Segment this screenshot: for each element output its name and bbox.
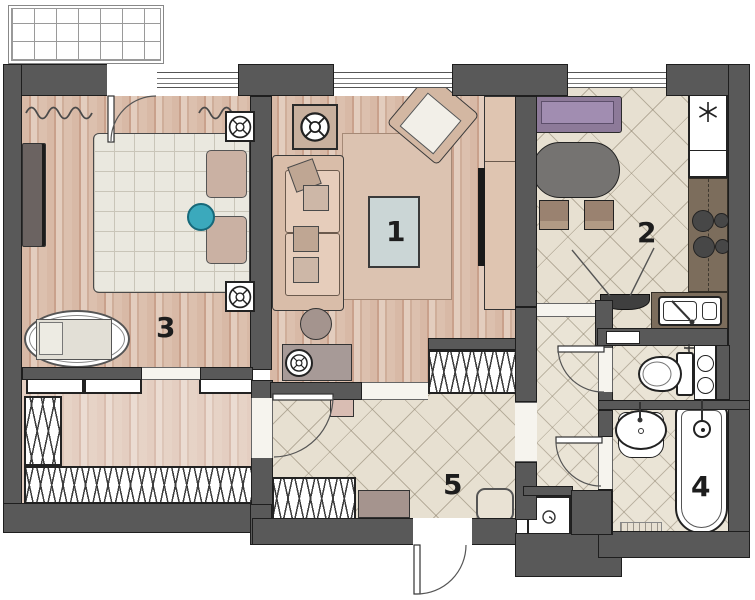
living-hall-opening xyxy=(362,382,428,400)
wall-living-bottom xyxy=(270,382,362,400)
crib-pillow xyxy=(39,322,63,355)
vent-duct xyxy=(606,331,640,344)
wall-top-pier xyxy=(238,64,334,96)
room-label-bedroom: 3 xyxy=(156,311,175,344)
sofa-pillow xyxy=(293,226,319,252)
wall-washer-side xyxy=(571,490,612,535)
bathroom-door-gap xyxy=(598,437,613,489)
tub-drain xyxy=(693,420,711,438)
wall-bottom-left xyxy=(3,503,270,533)
tv-unit xyxy=(484,96,516,310)
hall-wardrobe xyxy=(272,477,356,520)
kitchen-corridor-opening xyxy=(537,303,595,317)
wall-hall-corridor xyxy=(515,307,537,402)
refrigerator xyxy=(688,90,728,178)
wall-closet-top xyxy=(428,338,517,350)
pouf xyxy=(476,488,514,522)
stool-edge xyxy=(540,221,568,229)
kitchen-sink xyxy=(658,296,722,326)
kitchen-bench xyxy=(533,96,622,133)
tv-unit-shelf-line xyxy=(485,161,515,162)
living-spot xyxy=(292,104,338,150)
bed-pillow xyxy=(206,150,247,198)
room-label-hallway: 5 xyxy=(443,468,462,501)
wardrobe-left xyxy=(24,396,62,466)
wall-wc-bath xyxy=(598,400,750,410)
dressing-door-gap xyxy=(251,398,273,458)
teal-ottoman xyxy=(187,203,215,231)
room-label-living: 1 xyxy=(386,215,405,248)
wc-door-gap xyxy=(598,348,613,392)
sink-basin xyxy=(663,301,697,321)
hall-corridor-opening xyxy=(515,402,537,462)
entrance-door-swing xyxy=(417,545,466,594)
counter-dash-line xyxy=(708,179,709,291)
kitchen-window xyxy=(568,72,666,88)
kitchen-stool xyxy=(584,200,614,230)
side-table xyxy=(300,308,332,340)
bedroom-dressing-opening xyxy=(142,367,200,380)
stool-edge xyxy=(585,221,613,229)
balcony-tile-grid xyxy=(11,8,161,61)
spiral-icon xyxy=(539,507,559,527)
sink-basin xyxy=(702,302,717,320)
bedroom-spot xyxy=(225,281,255,312)
living-window xyxy=(334,72,452,88)
wall-bottom-bath xyxy=(598,531,750,558)
sofa-pillow xyxy=(293,257,319,283)
wardrobe-bottom xyxy=(24,466,253,504)
wall-bottom-hall xyxy=(252,518,517,545)
sofa-pillow xyxy=(303,185,329,211)
snowflake-icon xyxy=(696,100,720,124)
circle-cross-spot-icon xyxy=(298,110,332,144)
wall-right xyxy=(728,64,750,558)
circle-cross-spot-icon xyxy=(227,114,253,140)
room-label-bathroom: 4 xyxy=(691,470,710,503)
bedroom-tv xyxy=(22,143,46,247)
toilet-bowl xyxy=(638,356,682,392)
hallway-closet xyxy=(428,350,517,394)
wall-top-pier xyxy=(452,64,568,96)
kitchen-stool xyxy=(539,200,569,230)
wall-bedroom-bottom xyxy=(22,367,142,380)
heater-circle xyxy=(697,355,714,372)
stove-burner xyxy=(693,236,715,258)
room-label-kitchen: 2 xyxy=(637,216,656,249)
kitchen-counter xyxy=(688,178,728,292)
bedroom-spot xyxy=(225,111,255,142)
floor-plan: 1 2 3 4 5 xyxy=(0,0,755,600)
circle-cross-spot-icon xyxy=(227,284,253,310)
entrance-door-leaf xyxy=(414,545,420,594)
wall-bath-left xyxy=(598,410,613,437)
tub-drain-dot xyxy=(701,428,705,432)
shoe-bench xyxy=(358,490,410,518)
entrance-door-gap xyxy=(413,518,472,545)
kitchen-table xyxy=(532,142,620,198)
hall-shelf xyxy=(330,397,354,417)
wall-washer-stub xyxy=(523,486,573,496)
desk-chair-icon xyxy=(285,349,313,377)
circle-cross-spot-icon xyxy=(288,352,310,374)
stove-burner xyxy=(692,210,714,232)
crib-mattress xyxy=(36,319,112,360)
living-tv xyxy=(478,168,485,266)
wall-bedroom-bottom xyxy=(200,367,253,380)
balcony-door-gap xyxy=(107,64,157,96)
wall-living-kitchen xyxy=(515,96,537,307)
stove-burner xyxy=(714,213,729,228)
wall-left xyxy=(3,64,22,533)
balcony xyxy=(8,5,164,64)
wall-wc-right xyxy=(716,345,730,400)
bedroom-window xyxy=(157,72,238,88)
fridge-divider xyxy=(690,150,726,151)
heater-circle xyxy=(697,377,714,394)
kitchen-bench-cushion xyxy=(541,101,614,124)
sink-drain xyxy=(638,428,644,434)
